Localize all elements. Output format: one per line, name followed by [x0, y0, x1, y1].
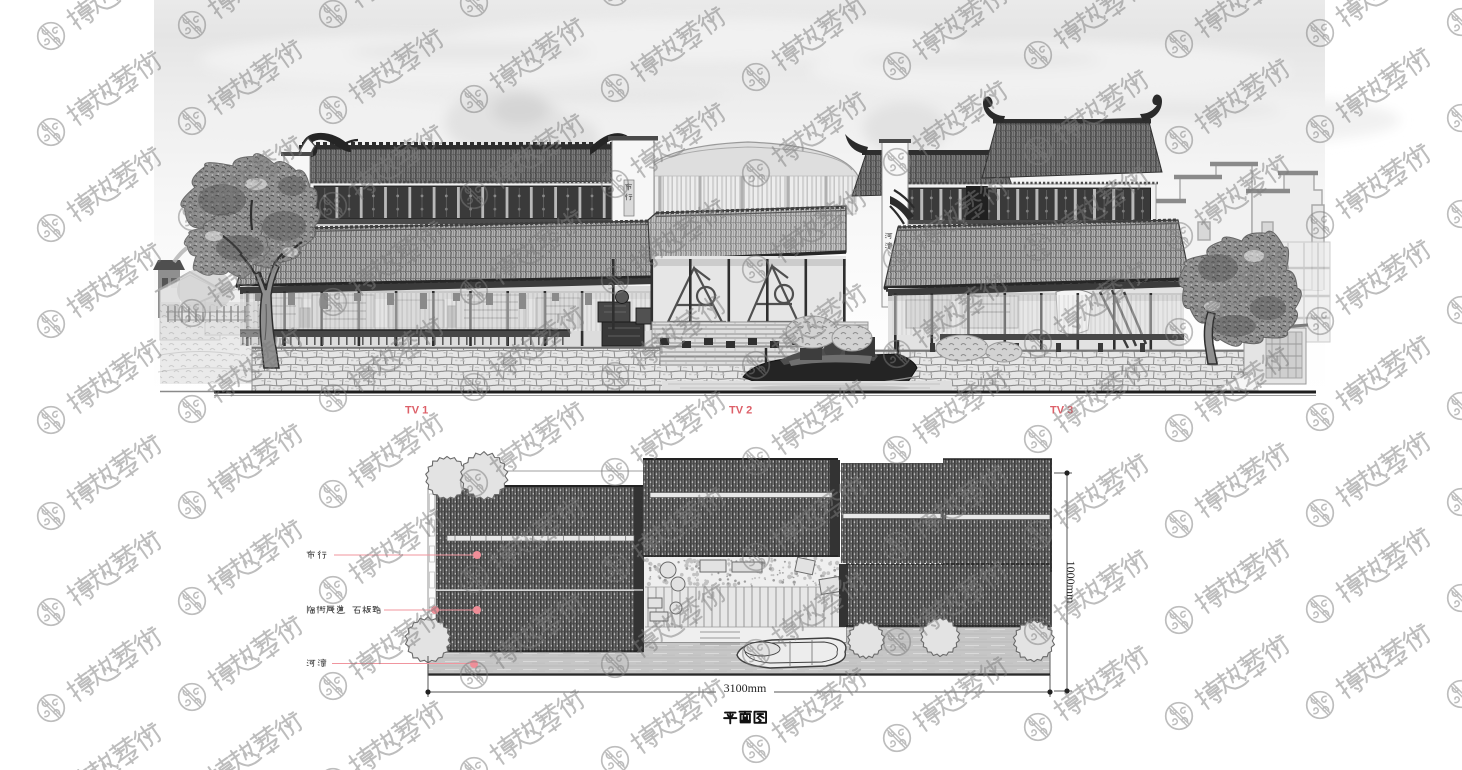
svg-text:3100mm: 3100mm — [724, 681, 767, 695]
svg-text:TV 1: TV 1 — [405, 405, 428, 417]
svg-text:TV 2: TV 2 — [729, 405, 752, 417]
